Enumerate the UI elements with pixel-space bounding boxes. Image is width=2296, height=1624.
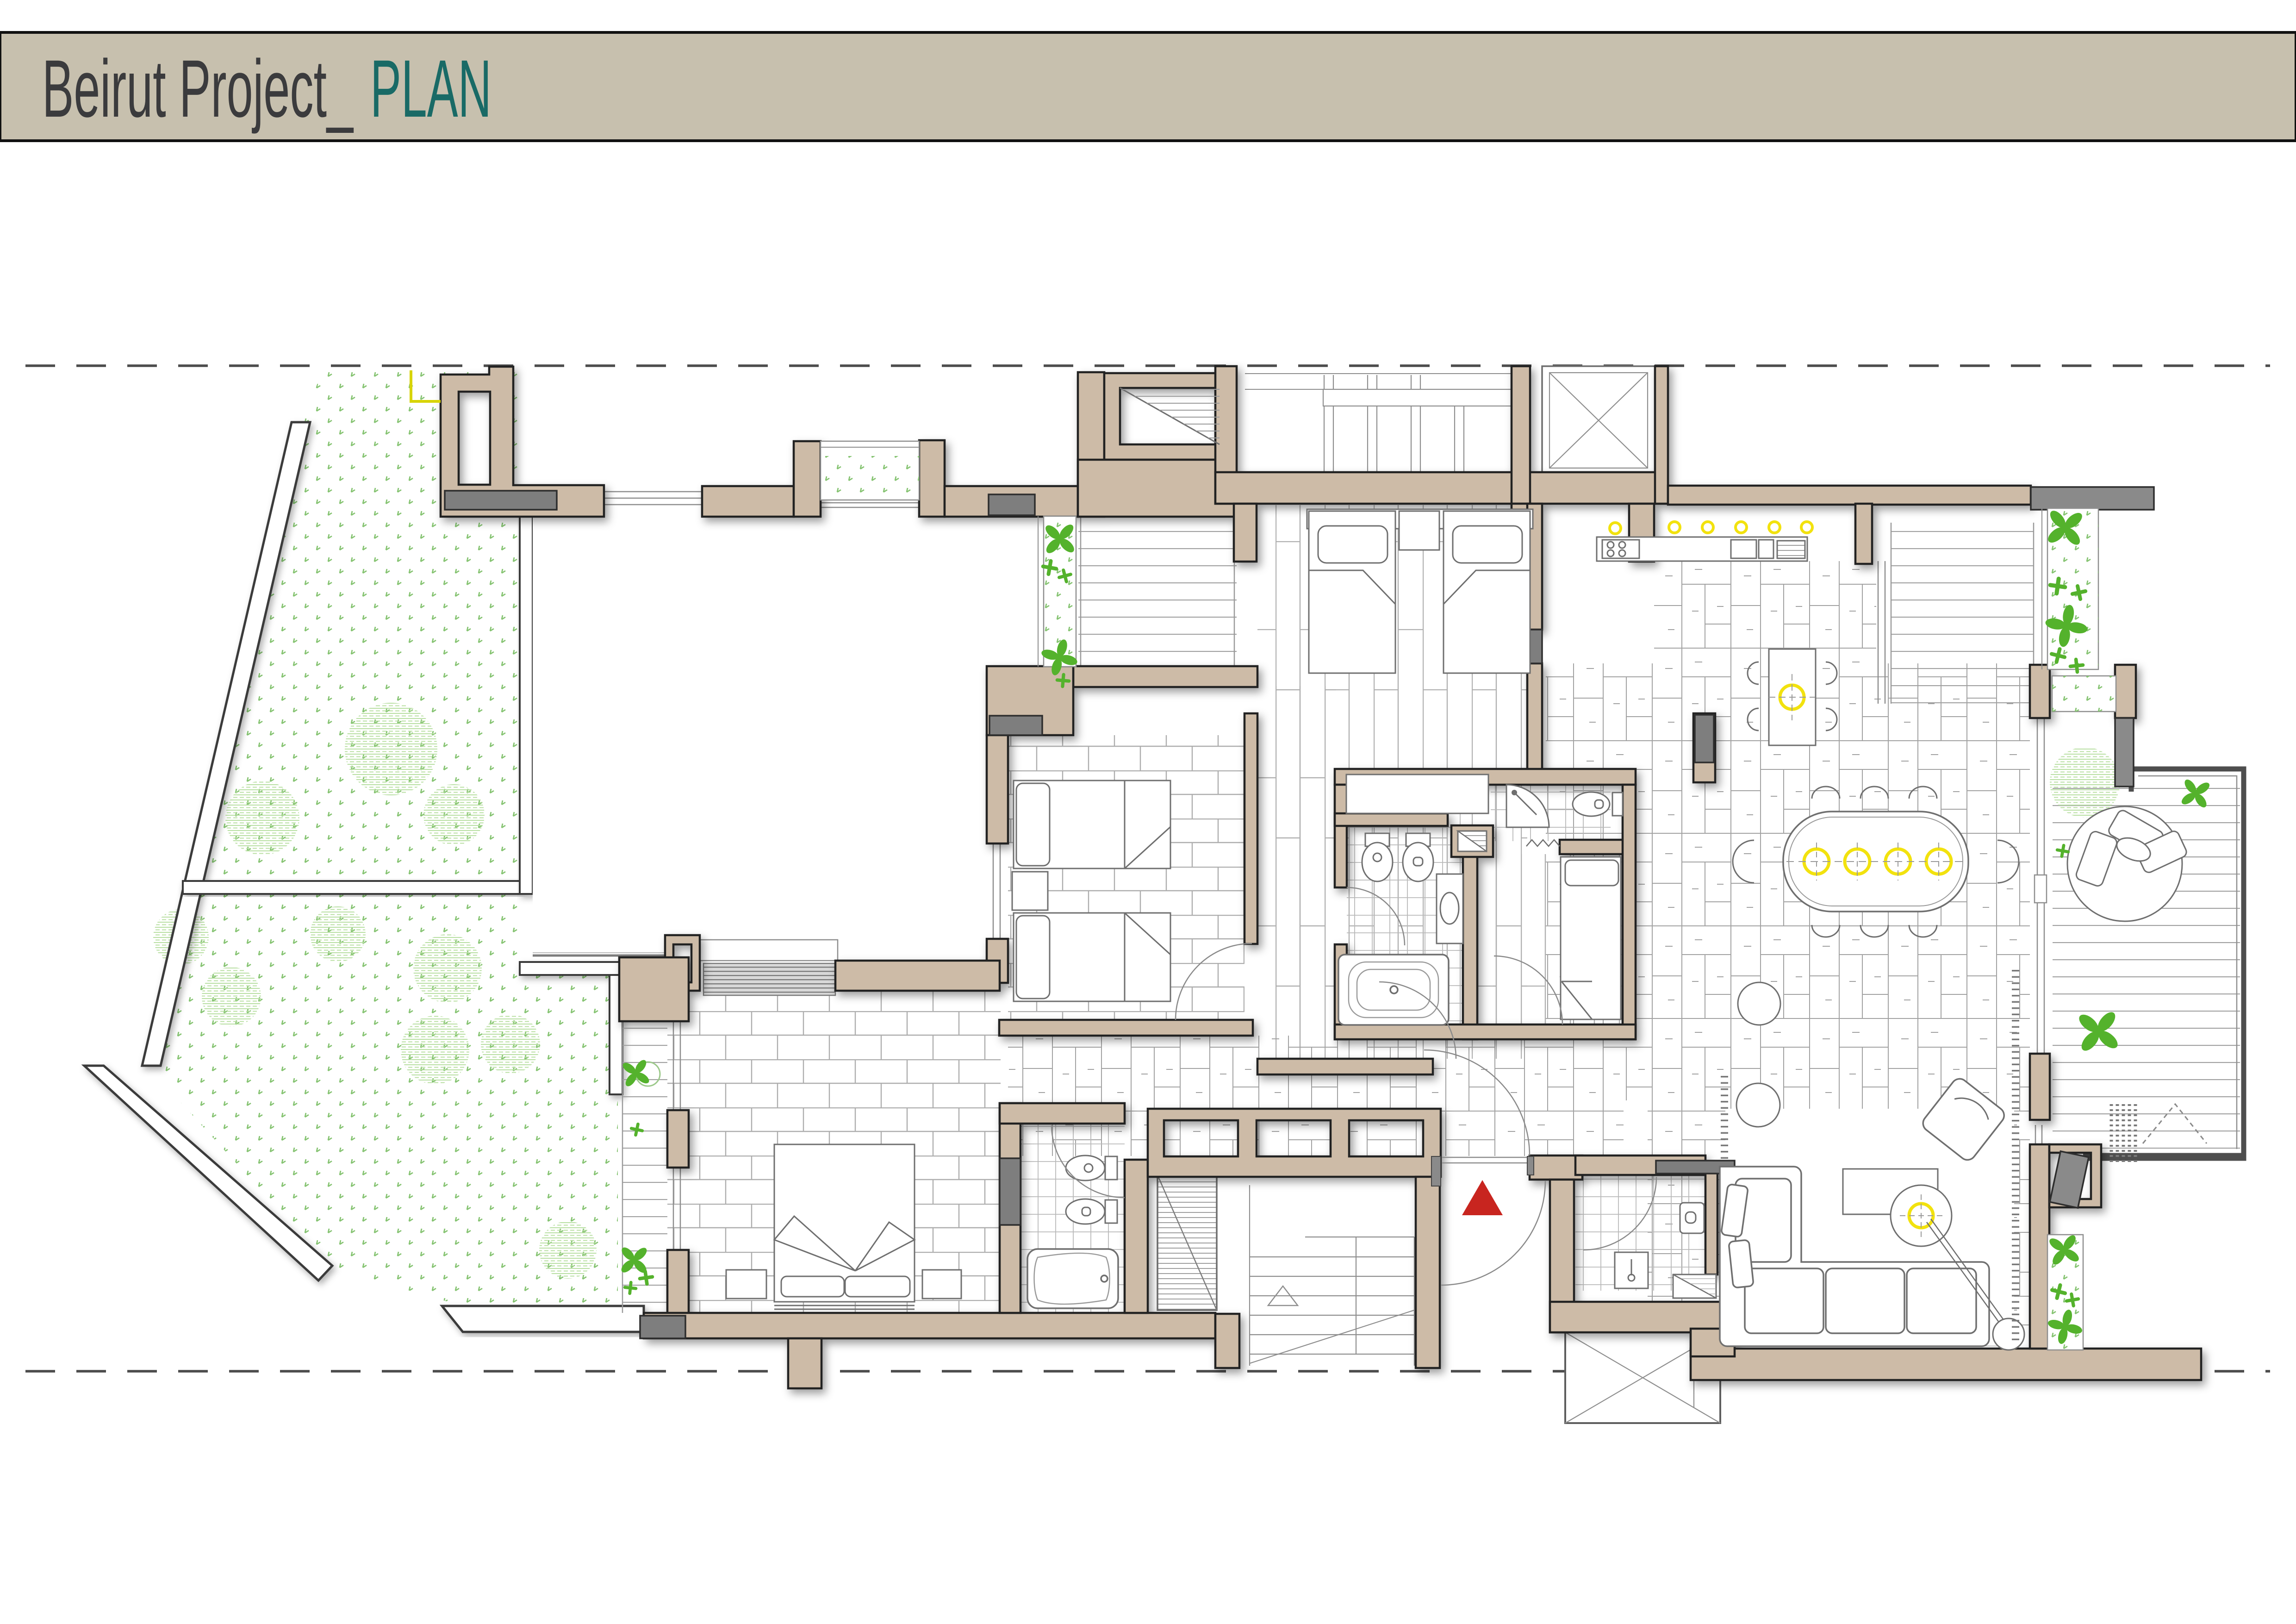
svg-text:PLAN: PLAN	[370, 44, 492, 134]
svg-text:Beirut Project_: Beirut Project_	[42, 44, 354, 134]
